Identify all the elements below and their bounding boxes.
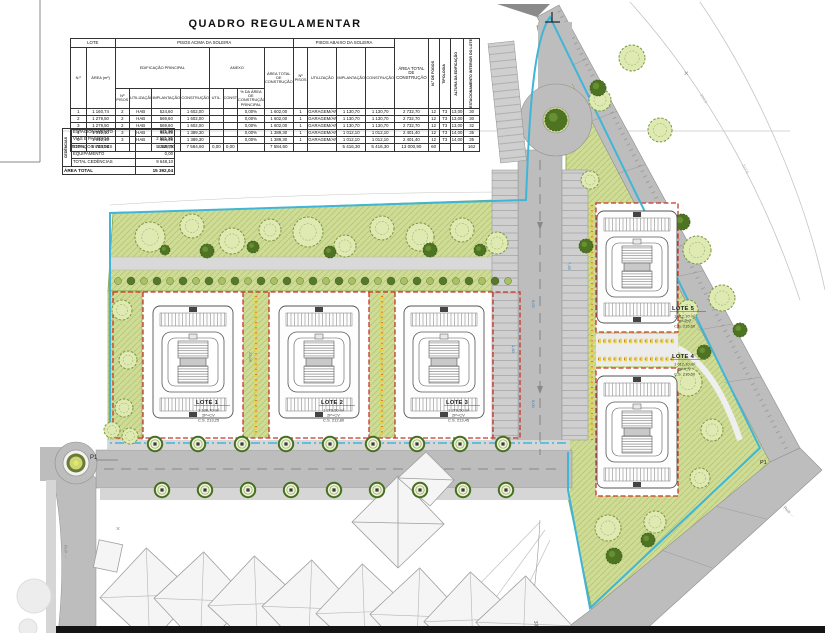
building (279, 306, 359, 418)
plan-annotation: P1 (90, 455, 98, 461)
table-cell: GARAGEM/ARREC. (308, 129, 337, 136)
tree-canopy-icon (683, 236, 711, 264)
table-cell: 12 (428, 115, 439, 122)
bush-icon (127, 277, 135, 285)
plan-annotation: 5,00 (531, 400, 536, 409)
street-tree (235, 437, 249, 451)
table-cell: 1 (293, 136, 307, 143)
cedencias-side-label: CEDÊNCIAS (63, 129, 72, 167)
plan-annotation: P1 (760, 460, 767, 466)
table-cell (210, 115, 223, 122)
tree-canopy-icon (115, 399, 133, 417)
street-tree (198, 483, 212, 497)
table-cell: 1 130,70 (337, 122, 366, 129)
bush-icon (153, 277, 161, 285)
header-area-total-geral: ÁREA TOTAL DE CONSTRUÇÃO (395, 39, 428, 109)
plan-annotation: 1,50 (511, 345, 516, 354)
walk-path-band (110, 257, 526, 270)
table-cell: 524,60 (152, 108, 181, 115)
cedencias-row: VIAS E PASSEIOS2 581,85 (63, 136, 175, 144)
table-cell: 1 (293, 108, 307, 115)
header-edif: EDIFICAÇÃO PRINCIPAL (115, 48, 210, 89)
plan-annotation: 7,25 (567, 262, 572, 271)
building (597, 211, 677, 323)
table-cell: 1 130,70 (366, 108, 395, 115)
table-cell: 5 416,30 (337, 143, 366, 151)
bush-icon (257, 277, 265, 285)
table-cell: 1 602,00 (181, 108, 210, 115)
table-cell: 35 (464, 129, 480, 136)
tree-dark-icon (324, 246, 336, 258)
cedencias-value: 671,90 (136, 129, 175, 137)
tree-canopy-icon (486, 232, 508, 254)
table-cell: 1 602,00 (264, 115, 293, 122)
table-cell: 1 012,10 (366, 136, 395, 143)
street-tree (453, 437, 467, 451)
green-band-north (108, 199, 526, 291)
table-cell (223, 136, 237, 143)
street-tree (413, 483, 427, 497)
table-cell: 12 (428, 108, 439, 115)
table-cell: 0,00% (238, 129, 265, 136)
table-cell: GARAGEM/ARREC. (308, 136, 337, 143)
plan-annotation: 217,5 (741, 163, 750, 175)
bush-icon (297, 278, 304, 285)
bush-icon (193, 278, 200, 285)
tree-canopy-icon (122, 428, 138, 444)
left-street (52, 470, 96, 633)
plan-annotation: × (116, 526, 120, 533)
table-cell: 162 (464, 143, 480, 151)
bush-icon (309, 277, 317, 285)
svg-text:LOTE 1: LOTE 1 (196, 400, 219, 406)
table-cell: 1 602,00 (181, 115, 210, 122)
street-tree (323, 437, 337, 451)
bush-icon (453, 278, 460, 285)
area-total-label: ÁREA TOTAL (63, 166, 136, 175)
tree-canopy-icon (644, 511, 666, 533)
table-cell (293, 143, 307, 151)
cedencias-value: 0,00 (136, 151, 175, 159)
tree-dark-icon (247, 241, 259, 253)
table-cell: 13,00 (450, 115, 463, 122)
tree-dark-icon (641, 533, 655, 547)
street-tree (327, 483, 341, 497)
street-tree (284, 483, 298, 497)
header-fogos: N.º DE FOGOS (428, 39, 439, 109)
bush-icon (427, 278, 434, 285)
building (404, 306, 484, 418)
bush-icon (349, 278, 356, 285)
table-cell: 1 012,10 (337, 129, 366, 136)
table-cell (223, 122, 237, 129)
table-cell (450, 143, 463, 151)
table-cell: 32 (464, 122, 480, 129)
header-abaixo: PISOS ABAIXO DA SOLEIRA (293, 39, 394, 48)
table-cell: 2 732,70 (395, 108, 428, 115)
bush-icon (115, 278, 122, 285)
table-cell: 1 012,10 (337, 136, 366, 143)
bush-icon (439, 277, 447, 285)
cedencias-row: EQUIPAMENTO0,00 (63, 151, 175, 159)
table-cell: 0,00% (238, 108, 265, 115)
table-cell: 13 000,90 (395, 143, 428, 151)
left-sidewalk (46, 480, 56, 633)
table-cell: GARAGEM/ARREC. (308, 108, 337, 115)
table-cell (210, 108, 223, 115)
table-cell: 1 012,10 (366, 129, 395, 136)
table-row: 11 160,742HAB524,601 602,000,00%1 602,00… (71, 108, 480, 115)
table-cell: 2 (115, 115, 129, 122)
cedencias-value: 5 268,75 (136, 144, 175, 152)
building (597, 376, 677, 488)
bush-icon (245, 278, 252, 285)
svg-text:C.S. 212,80: C.S. 212,80 (323, 418, 345, 423)
header-lote: LOTE (71, 39, 116, 48)
header-tipologia: TIPOLOGIA (439, 39, 450, 109)
table-cell: T3 (439, 108, 450, 115)
street-tree (366, 437, 380, 451)
table-cell: T3 (439, 115, 450, 122)
table-cell (223, 129, 237, 136)
street-tree (148, 437, 162, 451)
header-num: N.º (71, 48, 87, 109)
table-cell: 1 (71, 108, 87, 115)
bush-icon (465, 277, 473, 285)
svg-text:LOTE 3: LOTE 3 (446, 400, 469, 406)
tree-dark-icon (474, 244, 486, 256)
cedencias-row: TOTAL CEDÊNCIAS9 648,10 (63, 159, 175, 167)
cedencias-label: VIAS E PASSEIOS (72, 136, 136, 144)
street-tree (279, 437, 293, 451)
table-cell: 2 (115, 108, 129, 115)
street-tree (496, 437, 510, 451)
header-area: ÁREA (m²) (86, 48, 115, 109)
tree-canopy-icon (259, 219, 281, 241)
table-cell: 1 130,70 (366, 122, 395, 129)
table-cell: 1 389,30 (264, 129, 293, 136)
table-cell: 1 602,00 (264, 122, 293, 129)
bush-icon (283, 277, 291, 285)
tree-dark-icon (160, 245, 170, 255)
tree-canopy-icon (219, 228, 245, 254)
table-cell: 12 (428, 129, 439, 136)
bush-icon (219, 278, 226, 285)
bush-icon (141, 278, 148, 285)
tree-dark-icon (579, 239, 593, 253)
bush-icon (323, 278, 330, 285)
cedencias-label: ESTACIONAMENTO (72, 129, 136, 137)
table-cell: 1 (293, 129, 307, 136)
tree-dark-icon (606, 548, 622, 564)
table-cell: 0,00% (238, 122, 265, 129)
table-cell: 1 130,70 (366, 115, 395, 122)
table-cell (210, 136, 223, 143)
table-cell: 30 (464, 115, 480, 122)
tree-canopy-icon (709, 285, 735, 311)
cedencias-row: ESPAÇOS VERDES5 268,75 (63, 144, 175, 152)
tree-canopy-icon (595, 515, 621, 541)
table-cell: 1 389,30 (264, 136, 293, 143)
tree-canopy-icon (619, 45, 645, 71)
cedencias-value: 2 581,85 (136, 136, 175, 144)
table-row: 21 279,502HAB569,601 602,000,00%1 602,00… (71, 115, 480, 122)
table-cell: 2 401,40 (395, 136, 428, 143)
cedencias-table: CEDÊNCIASESTACIONAMENTO671,90VIAS E PASS… (62, 128, 175, 175)
table-cell: HAB (130, 115, 152, 122)
tree-canopy-icon (104, 422, 120, 438)
plan-annotation: 216,0 (699, 93, 709, 105)
bush-icon (479, 278, 486, 285)
street-tree (456, 483, 470, 497)
bush-icon (491, 277, 499, 285)
table-cell: 5 416,30 (366, 143, 395, 151)
table-cell: 12 (428, 136, 439, 143)
bush-icon (231, 277, 239, 285)
table-cell: 0,00 (223, 143, 237, 151)
bush-icon (179, 277, 187, 285)
table-cell (223, 108, 237, 115)
table-cell (308, 143, 337, 151)
street-tree (370, 483, 384, 497)
header-area-total: ÁREA TOTAL DE CONSTRUÇÃO (264, 48, 293, 109)
tree-canopy-icon (119, 351, 137, 369)
table-cell: 13,00 (450, 122, 463, 129)
table-cell: 1 279,50 (86, 115, 115, 122)
table-cell: T3 (439, 122, 450, 129)
table-cell: 30 (464, 108, 480, 115)
table-cell: 0,00% (238, 115, 265, 122)
bush-icon (401, 278, 408, 285)
tree-dark-icon (733, 323, 747, 337)
bush-icon (375, 278, 382, 285)
table-cell: 0,00% (238, 136, 265, 143)
plan-annotation: 25,05 (248, 352, 253, 363)
bush-icon (271, 278, 278, 285)
header-altura: ALTURA DA EDIFICAÇÃO (450, 39, 463, 109)
header-estacionamento: ESTACIONAMENTO INTERIOR DO LOTE (464, 39, 480, 109)
tree-canopy-icon (334, 235, 356, 257)
table-cell: 14,00 (450, 129, 463, 136)
table-cell: 35 (464, 136, 480, 143)
bush-icon (167, 278, 174, 285)
cedencias-label: TOTAL CEDÊNCIAS (72, 159, 136, 167)
street-tree (410, 437, 424, 451)
tree-canopy-icon (701, 419, 723, 441)
table-cell: GARAGEM/ARREC. (308, 122, 337, 129)
table-cell (238, 143, 265, 151)
tree-canopy-icon (293, 217, 323, 247)
cedencias-value: 9 648,10 (136, 159, 175, 167)
svg-text:C.S. 213,25: C.S. 213,25 (198, 418, 220, 423)
table-cell: 2 732,70 (395, 115, 428, 122)
table-cell: 2 (71, 115, 87, 122)
table-cell: 60 (428, 143, 439, 151)
table-cell: 1 602,00 (181, 122, 210, 129)
cedencias-total-row: ÁREA TOTAL15 392,04 (63, 166, 175, 175)
tree-dark-icon (423, 243, 437, 257)
table-cell: 14,00 (450, 136, 463, 143)
tree-canopy-icon (581, 171, 599, 189)
tree-dark-icon (590, 80, 606, 96)
table-cell: 7 584,60 (181, 143, 210, 151)
tree-canopy-icon (180, 214, 204, 238)
svg-text:C.S. 215,60: C.S. 215,60 (674, 324, 696, 329)
table-cell: 1 602,00 (264, 108, 293, 115)
table-cell: GARAGEM/ARREC. (308, 115, 337, 122)
table-cell: 569,60 (152, 115, 181, 122)
bush-icon (205, 277, 213, 285)
table-cell: 2 732,70 (395, 122, 428, 129)
table-cell: T3 (439, 136, 450, 143)
street-tree (191, 437, 205, 451)
table-cell: 0,00 (210, 143, 223, 151)
tree-dark-icon (697, 345, 711, 359)
table-cell (210, 122, 223, 129)
tree-canopy-icon (112, 300, 132, 320)
bottom-black-bar (56, 626, 825, 633)
table-cell: T3 (439, 129, 450, 136)
table-cell: HAB (130, 108, 152, 115)
tree-dark-icon (545, 109, 567, 131)
svg-text:C.S. 215,50: C.S. 215,50 (674, 372, 696, 377)
table-cell (210, 129, 223, 136)
table-cell: 2 401,40 (395, 129, 428, 136)
tree-canopy-icon (370, 216, 394, 240)
svg-text:LOTE 4: LOTE 4 (672, 354, 695, 360)
tree-canopy-icon (690, 468, 710, 488)
page-title: QUADRO REGULAMENTAR (70, 18, 480, 30)
bush-icon (361, 277, 369, 285)
table-cell: 12 (428, 122, 439, 129)
header-anexo: ANEXO (210, 48, 265, 89)
cedencias-label: ESPAÇOS VERDES (72, 144, 136, 152)
bush-icon (505, 278, 512, 285)
street-tree (241, 483, 255, 497)
tree-dark-icon (200, 244, 214, 258)
header-acima: PISOS ACIMA DA SOLEIRA (115, 39, 293, 48)
tree-canopy-icon (450, 218, 474, 242)
plan-annotation: × (684, 69, 689, 78)
svg-text:C.S. 213,45: C.S. 213,45 (448, 418, 470, 423)
table-cell: 1 130,70 (337, 108, 366, 115)
svg-text:LOTE 2: LOTE 2 (321, 400, 343, 406)
cedencias-label: EQUIPAMENTO (72, 151, 136, 159)
plan-annotation: 5,00 (531, 300, 536, 309)
svg-text:LOTE 5: LOTE 5 (672, 306, 695, 312)
drawing-sheet: LOTE 11 130,70 m²2P+CVC.S. 213,25LOTE 21… (0, 0, 825, 633)
bush-icon (335, 277, 343, 285)
tree-canopy-icon (648, 118, 672, 142)
table-cell (223, 115, 237, 122)
table-cell: 1 160,74 (86, 108, 115, 115)
street-tree (499, 483, 513, 497)
table-cell: 1 (293, 122, 307, 129)
table-cell: 13,00 (450, 108, 463, 115)
area-total-value: 15 392,04 (136, 166, 175, 175)
table-cell: 1 389,30 (181, 129, 210, 136)
bush-icon (387, 277, 395, 285)
table-cell: 1 389,30 (181, 136, 210, 143)
table-cell: 1 130,70 (337, 115, 366, 122)
table-cell: 1 (293, 115, 307, 122)
plan-annotation: Rua … (782, 505, 796, 518)
building (153, 306, 233, 418)
street-tree (155, 483, 169, 497)
table-cell (439, 143, 450, 151)
bush-icon (413, 277, 421, 285)
table-cell: 7 584,60 (264, 143, 293, 151)
cedencias-row: CEDÊNCIASESTACIONAMENTO671,90 (63, 129, 175, 137)
